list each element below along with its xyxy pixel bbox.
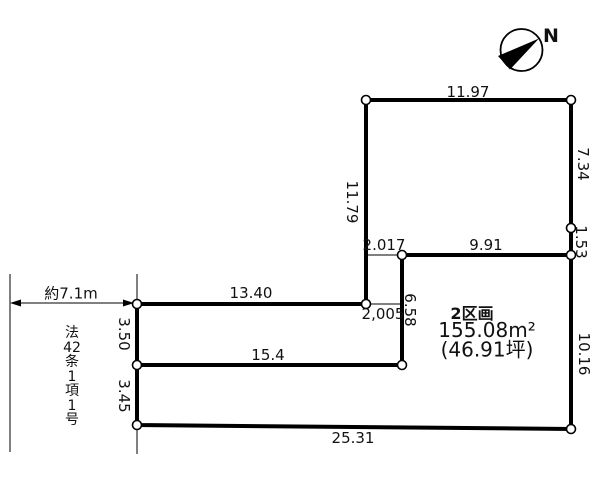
road-width-label: 約7.1m — [44, 283, 97, 304]
dimension-label-offset-upper: 2.017 — [363, 236, 406, 254]
road-law-label: 法 42 条 1 項 1 号 — [60, 326, 84, 428]
dimension-label-left-upper: 3.50 — [115, 317, 133, 350]
vertex-marker — [133, 300, 142, 309]
vertex-marker — [567, 96, 576, 105]
vertex-markers — [133, 96, 576, 434]
dimension-label-inner-vertical: 6.58 — [401, 293, 419, 326]
vertex-marker — [133, 361, 142, 370]
arrow-left-icon — [10, 300, 21, 307]
diagram-canvas — [0, 0, 600, 483]
dimension-label-mid-horizontal: 13.40 — [230, 284, 273, 302]
parcel-boundary — [137, 100, 571, 429]
dimension-label-inner-horizontal: 9.91 — [469, 236, 502, 254]
vertex-marker — [362, 96, 371, 105]
dimension-label-right-step: 1.53 — [572, 225, 590, 258]
vertex-marker — [133, 421, 142, 430]
parcel-area-tsubo-label: (46.91坪) — [441, 334, 534, 363]
compass-icon — [498, 29, 543, 71]
dimension-label-inner-left-vertical: 11.79 — [343, 181, 361, 224]
dimension-label-top-edge: 11.97 — [447, 83, 490, 101]
dimension-label-lower-horizontal: 15.4 — [251, 346, 284, 364]
dimension-label-offset-lower: 2,005 — [362, 305, 405, 323]
plot-survey-diagram: N 11.97 9.91 2.017 13.40 2,005 15.4 25.3… — [0, 0, 600, 483]
vertex-marker — [398, 361, 407, 370]
dimension-label-right-lower: 10.16 — [575, 333, 593, 376]
dimension-label-left-lower: 3.45 — [115, 379, 133, 412]
vertex-marker — [567, 425, 576, 434]
compass-north-label: N — [543, 25, 559, 47]
dimension-label-right-upper: 7.34 — [574, 147, 592, 180]
dimension-label-bottom-edge: 25.31 — [332, 429, 375, 447]
